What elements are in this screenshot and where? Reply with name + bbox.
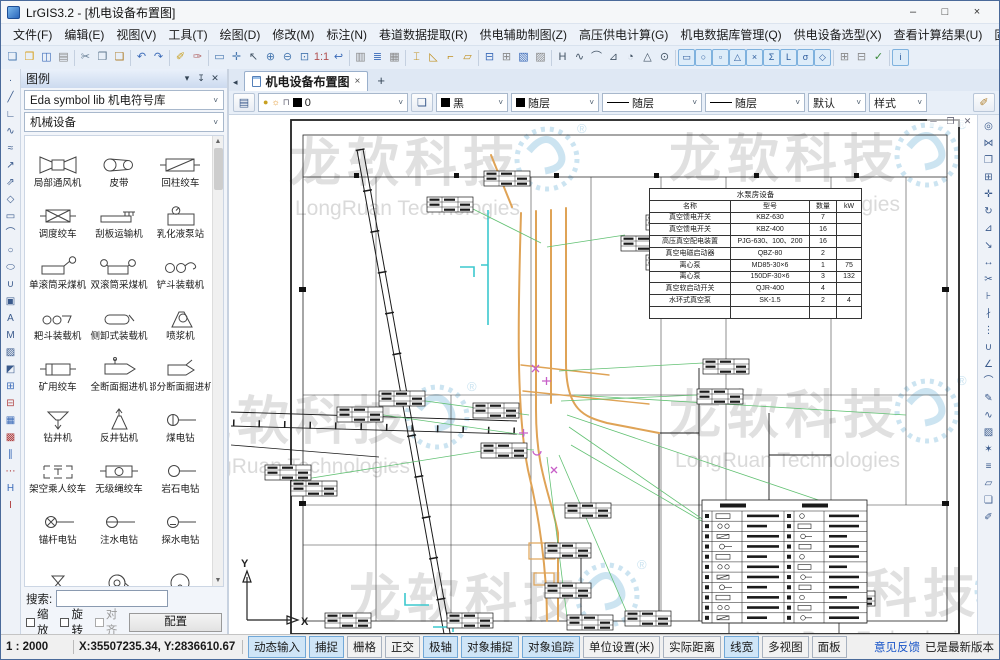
legend-symbol-18[interactable]: 架空乘人绞车	[27, 444, 88, 495]
toolbar-belt-layout-icon[interactable]: ⌶	[408, 49, 425, 66]
draw-align-icon[interactable]: ∥	[3, 446, 19, 463]
legend-symbol-label: 反井钻机	[100, 434, 138, 444]
tab-drawing[interactable]: 机电设备布置图 ×	[244, 71, 369, 91]
modify-fillet-icon[interactable]: ⌒	[981, 373, 997, 390]
layer-manager-icon[interactable]: ▤	[233, 93, 255, 112]
legend-symbol-9[interactable]: 耙斗装载机	[27, 291, 88, 342]
modify-join-icon[interactable]: ∪	[981, 339, 997, 356]
modify-edit-hatch-icon[interactable]: ▨	[981, 424, 997, 441]
legend-symbol-label: 铲斗装载机	[157, 281, 205, 291]
modify-array-icon[interactable]: ⊞	[981, 169, 997, 186]
toolbar-multi-view-2-icon[interactable]: ⊟	[853, 49, 870, 66]
table-row: 高压真空配电装置PJG-630、100、20016	[650, 236, 862, 248]
legend-symbol-label: 刮板运输机	[95, 230, 143, 240]
toolbar-fixed-equip-2-icon[interactable]: ∿	[571, 49, 588, 66]
toolbar-power-draft-1-icon[interactable]: ⊟	[481, 49, 498, 66]
toolbar-info-icon[interactable]: i	[892, 49, 909, 66]
panel-close-icon[interactable]: ✕	[208, 73, 222, 84]
pump-table-title: 水泵房设备	[650, 189, 862, 201]
version-status: 已是最新版本	[925, 639, 994, 655]
table-row	[650, 306, 862, 318]
menu-power-draft[interactable]: 供电辅助制图(Z)	[474, 24, 573, 45]
mdi-close-icon[interactable]: ✕	[961, 116, 974, 127]
legend-symbol-5[interactable]: 乳化液泵站	[150, 189, 211, 240]
legend-symbol-2[interactable]: 回柱绞车	[150, 138, 211, 189]
checkbox-rotate-box[interactable]	[60, 618, 69, 627]
toolbar-open-icon[interactable]: ❒	[21, 49, 38, 66]
status-toggles: 动态输入捕捉栅格正交极轴对象捕捉对象追踪单位设置(米)实际距离线宽多视图面板	[248, 636, 847, 658]
modify-lengthen-icon[interactable]: ↔	[981, 254, 997, 271]
modify-select-similar-icon[interactable]: ◎	[981, 118, 997, 135]
modify-edit-spline-icon[interactable]: ∿	[981, 407, 997, 424]
legend-symbol-25[interactable]	[88, 546, 149, 587]
toolbar-fixed-equip-7-icon[interactable]: ⊙	[656, 49, 673, 66]
mdi-restore-icon[interactable]: ❐	[944, 116, 957, 127]
legend-symbol-3[interactable]: 调度绞车	[27, 189, 88, 240]
layer-color-swatch	[293, 98, 302, 107]
draw-point-icon[interactable]: ·	[3, 72, 19, 89]
toolbar-lifting-layout-icon[interactable]: ⌐	[442, 49, 459, 66]
plot-style-select[interactable]: 默认˅	[808, 93, 866, 112]
toolbar-result-diamond-icon[interactable]: ◇	[814, 49, 831, 66]
table-row: 真空软启动开关QJR-4004	[650, 283, 862, 295]
legend-symbol-19[interactable]: 无级绳绞车	[88, 444, 149, 495]
legend-symbol-17[interactable]: 煤电钻	[150, 393, 211, 444]
draw-block-edit-icon[interactable]: ▩	[3, 429, 19, 446]
legend-symbol-label: 岩石电钻	[161, 485, 199, 495]
draw-block-attribute-icon[interactable]: ▦	[3, 412, 19, 429]
toolbar-result-rect-icon[interactable]: ▭	[678, 49, 695, 66]
linetype-select[interactable]: 随层˅	[602, 93, 702, 112]
legend-symbol-8[interactable]: 铲斗装载机	[150, 240, 211, 291]
table-row: 真空电磁启动器QBZ-802	[650, 247, 862, 259]
menu-tools[interactable]: 工具(T)	[162, 24, 213, 45]
toolbar-undo-icon[interactable]: ↶	[133, 49, 150, 66]
draw-mtext-icon[interactable]: M	[3, 327, 19, 344]
menu-modify[interactable]: 修改(M)	[266, 24, 320, 45]
legend-symbol-label: 矿用绞车	[39, 383, 77, 393]
toggle-lineweight[interactable]: 线宽	[724, 636, 759, 658]
toggle-grid[interactable]: 栅格	[347, 636, 382, 658]
chevron-down-icon: ˅	[213, 96, 218, 105]
legend-symbol-label: 单滚筒采煤机	[29, 281, 86, 291]
toolbar-save-icon[interactable]: ◫	[38, 49, 55, 66]
legend-symbol-24[interactable]	[27, 546, 88, 587]
drawing-canvas[interactable]: 龙软科技LongRuan Technologies®龙软科技LongRuan T…	[229, 115, 977, 634]
legend-symbol-16[interactable]: 反井钻机	[88, 393, 149, 444]
svg-text:X: X	[301, 616, 309, 628]
toggle-ortho[interactable]: 正交	[385, 636, 420, 658]
toolbar-result-square-icon[interactable]: ▫	[712, 49, 729, 66]
toolbar-copy-icon[interactable]: ❐	[94, 49, 111, 66]
toggle-panel[interactable]: 面板	[812, 636, 847, 658]
table-row: 真空馈电开关KBZ-40016	[650, 224, 862, 236]
legend-symbol-23[interactable]: 探水电钻	[150, 495, 211, 546]
toggle-units-meter[interactable]: 单位设置(米)	[583, 636, 660, 658]
modify-move-icon[interactable]: ✛	[981, 186, 997, 203]
sun-icon[interactable]: ☼	[271, 98, 279, 107]
draw-ray-icon[interactable]: ↗	[3, 157, 19, 174]
minimize-button[interactable]: –	[897, 2, 929, 22]
modify-break-icon[interactable]: ∤	[981, 305, 997, 322]
legend-symbol-21[interactable]: 锚杆电钻	[27, 495, 88, 546]
table-row: 水环式真空泵SK-1.524	[650, 295, 862, 307]
legend-symbol-0[interactable]: 局部通风机	[27, 138, 88, 189]
legend-panel: 图例 ▾ ↧ ✕ Eda symbol lib 机电符号库 ˅ 机械设备 ˅ 局…	[21, 69, 229, 634]
legend-symbol-label: 调度绞车	[39, 230, 77, 240]
toolbar-apply-check-icon[interactable]: ✓	[870, 49, 887, 66]
toolbar-select-icon[interactable]: ↖	[245, 49, 262, 66]
table-row: 离心泵150DF-30×63132	[650, 271, 862, 283]
toolbar-print-preview-icon[interactable]: ▤	[55, 49, 72, 66]
modify-scale-icon[interactable]: ⊿	[981, 220, 997, 237]
menu-fixed-equip[interactable]: 固定及运输设备选型(Y)	[988, 24, 999, 45]
app-window: LrGIS3.2 - [机电设备布置图] – □ × 文件(F)编辑(E)视图(…	[0, 0, 1000, 660]
draw-line-icon[interactable]: ╱	[3, 89, 19, 106]
modify-break-at-point-icon[interactable]: ⋮	[981, 322, 997, 339]
legend-options: 缩放旋转对齐配置	[21, 610, 227, 634]
toolbar-roadway-extract-2-icon[interactable]: ≣	[369, 49, 386, 66]
draw-image-icon[interactable]: ▣	[3, 293, 19, 310]
toggle-snap[interactable]: 捕捉	[309, 636, 344, 658]
pump-room-table: 水泵房设备名称型号数量kW真空馈电开关KBZ-6307真空馈电开关KBZ-400…	[649, 188, 862, 319]
menu-annotate[interactable]: 标注(N)	[320, 24, 373, 45]
scroll-down-icon[interactable]: ▼	[213, 575, 223, 586]
toolbar-result-circle-icon[interactable]: ○	[695, 49, 712, 66]
toggle-real-distance[interactable]: 实际距离	[663, 636, 721, 658]
legend-symbol-label: 喷浆机	[166, 332, 195, 342]
draw-text-icon[interactable]: A	[3, 310, 19, 327]
draw-circle-icon[interactable]: ○	[3, 242, 19, 259]
menubar: 文件(F)编辑(E)视图(V)工具(T)绘图(D)修改(M)标注(N)巷道数据提…	[1, 23, 999, 45]
draw-gradient-hatch-icon[interactable]: ◩	[3, 361, 19, 378]
toggle-dynamic-input[interactable]: 动态输入	[248, 636, 306, 658]
legend-scrollbar[interactable]: ▲ ▼	[212, 136, 223, 586]
menu-hv-calc[interactable]: 高压供电计算(G)	[573, 24, 674, 45]
modify-chamfer-icon[interactable]: ∠	[981, 356, 997, 373]
pump-table-header: 型号	[731, 200, 810, 212]
draw-h-beam-icon[interactable]: H	[3, 480, 19, 497]
lineweight-select[interactable]: 随层˅	[705, 93, 805, 112]
toggle-polar[interactable]: 极轴	[423, 636, 458, 658]
titlebar: LrGIS3.2 - [机电设备布置图] – □ ×	[1, 1, 999, 23]
draw-hatch-icon[interactable]: ▨	[3, 344, 19, 361]
config-button[interactable]: 配置	[129, 613, 222, 632]
draw-insert-block-icon[interactable]: ⊞	[3, 378, 19, 395]
legend-symbol-label: 探水电钻	[161, 536, 199, 546]
new-tab-button[interactable]: +	[371, 73, 391, 91]
draw-spline-icon[interactable]: ∿	[3, 123, 19, 140]
toggle-object-snap[interactable]: 对象捕捉	[461, 636, 519, 658]
draw-arc-icon[interactable]: ⌒	[3, 225, 19, 242]
draw-create-block-icon[interactable]: ⊟	[3, 395, 19, 412]
scale-indicator: 1 : 2000	[6, 641, 68, 653]
modify-copy-object-icon[interactable]: ❐	[981, 152, 997, 169]
table-row: 真空馈电开关KBZ-6307	[650, 212, 862, 224]
toolbar-result-sigma-icon[interactable]: Σ	[763, 49, 780, 66]
text-style-select[interactable]: 样式˅	[869, 93, 927, 112]
legend-symbol-label: 回柱绞车	[161, 179, 199, 189]
draw-construction-line-icon[interactable]: ⇗	[3, 174, 19, 191]
svg-text:Y: Y	[241, 558, 249, 570]
toolbar-previous-view-icon[interactable]: ↩	[330, 49, 347, 66]
draw-polygon-icon[interactable]: ◇	[3, 191, 19, 208]
menu-power-equip[interactable]: 供电设备选型(X)	[788, 24, 888, 45]
close-button[interactable]: ×	[961, 2, 993, 22]
modify-trim-icon[interactable]: ✂	[981, 271, 997, 288]
legend-symbol-label: 全断面掘进机	[90, 383, 147, 393]
toolbar-roadway-extract-3-icon[interactable]: ▦	[386, 49, 403, 66]
draw-polyline-icon[interactable]: ∟	[3, 106, 19, 123]
legend-symbol-label: 锚杆电钻	[39, 536, 77, 546]
legend-symbol-10[interactable]: 侧卸式装载机	[88, 291, 149, 342]
toolbar-multi-view-1-icon[interactable]: ⊞	[836, 49, 853, 66]
color-bylayer-select[interactable]: 随层˅	[511, 93, 599, 112]
scrollbar-thumb[interactable]	[214, 148, 223, 190]
modify-wipeout-icon[interactable]: ▱	[981, 475, 997, 492]
draw-sketch-icon[interactable]: ≈	[3, 140, 19, 157]
search-input[interactable]	[56, 590, 168, 607]
panel-dropdown-icon[interactable]: ▾	[180, 73, 194, 84]
legend-symbol-label: 部分断面掘进机	[150, 383, 211, 393]
draw-toolbar: ·╱∟∿≈↗⇗◇▭⌒○⬭∪▣AM▨◩⊞⊟▦▩∥⋯HI	[1, 69, 21, 634]
modify-draworder-icon[interactable]: ❏	[981, 492, 997, 509]
legend-symbol-label: 煤电钻	[166, 434, 195, 444]
toolbar-slope-layout-icon[interactable]: ◺	[425, 49, 442, 66]
menu-view-results[interactable]: 查看计算结果(U)	[888, 24, 989, 45]
modify-rotate-icon[interactable]: ↻	[981, 203, 997, 220]
symbol-list: 局部通风机皮带回柱绞车调度绞车刮板运输机乳化液泵站单滚筒采煤机双滚筒采煤机铲斗装…	[24, 135, 224, 587]
pump-table-header: 数量	[810, 200, 837, 212]
toolbar-fixed-equip-4-icon[interactable]: ⊿	[605, 49, 622, 66]
toolbar-fixed-equip-3-icon[interactable]: ⌒	[588, 49, 605, 66]
toolbar-result-sigma2-icon[interactable]: σ	[797, 49, 814, 66]
legend-symbol-14[interactable]: 部分断面掘进机	[150, 342, 211, 393]
toolbar-zoom-in-icon[interactable]: ⊕	[262, 49, 279, 66]
legend-symbol-4[interactable]: 刮板运输机	[88, 189, 149, 240]
chevron-down-icon: ˅	[213, 118, 218, 127]
toolbar-result-triangle-icon[interactable]: △	[729, 49, 746, 66]
legend-symbol-26[interactable]	[150, 546, 211, 587]
lock-icon[interactable]: ⊓	[283, 98, 290, 107]
legend-symbol-label: 局部通风机	[34, 179, 82, 189]
legend-symbol-7[interactable]: 双滚筒采煤机	[88, 240, 149, 291]
properties-toolbar: ▤ ● ☼ ⊓ 0 ˅ ❑ 黑˅ 随层˅ 随层˅	[229, 91, 999, 115]
legend-symbol-13[interactable]: 全断面掘进机	[88, 342, 149, 393]
color-select[interactable]: 黑˅	[436, 93, 508, 112]
legend-symbol-label: 乳化液泵站	[157, 230, 205, 240]
checkbox-scale-box[interactable]	[26, 618, 35, 627]
tabbar: ◂ 机电设备布置图 × +	[229, 69, 999, 91]
bulb-icon[interactable]: ●	[263, 98, 268, 107]
pump-table-header: 名称	[650, 200, 731, 212]
modify-explode-icon[interactable]: ✶	[981, 441, 997, 458]
toolbar-zoom-1-1-icon[interactable]: 1:1	[313, 49, 330, 66]
toolbar-fixed-equip-1-icon[interactable]: H	[554, 49, 571, 66]
legend-symbol-label: 侧卸式装载机	[90, 332, 147, 342]
toolbar-clean-brush-icon[interactable]: ✑	[189, 49, 206, 66]
mdi-minimize-icon[interactable]: ─	[927, 116, 940, 127]
legend-symbol-label: 架空乘人绞车	[29, 485, 86, 495]
menu-view[interactable]: 视图(V)	[110, 24, 162, 45]
toolbar-result-x-icon[interactable]: ×	[746, 49, 763, 66]
toolbar-fixed-equip-5-icon[interactable]: ◔	[622, 49, 639, 66]
main-toolbar: ❏❒◫▤✂❐❑↶↷✐✑▭✛↖⊕⊖⊡1:1↩▥≣▦⌶◺⌐▱⊟⊞▧▨H∿⌒⊿◔△⊙▭…	[1, 45, 999, 69]
toolbar-cut-icon[interactable]: ✂	[77, 49, 94, 66]
toolbar-zoom-out-icon[interactable]: ⊖	[279, 49, 296, 66]
toolbar-power-draft-4-icon[interactable]: ▨	[532, 49, 549, 66]
toolbar-roadway-extract-1-icon[interactable]: ▥	[352, 49, 369, 66]
toggle-object-track[interactable]: 对象追踪	[522, 636, 580, 658]
menu-roadway-data[interactable]: 巷道数据提取(R)	[373, 24, 474, 45]
modify-toolbar: ◎⋈❐⊞✛↻⊿↘↔✂⊦∤⋮∪∠⌒✎∿▨✶≡▱❏✐	[977, 115, 999, 634]
toolbar-result-corner-icon[interactable]: L	[780, 49, 797, 66]
modify-mirror-icon[interactable]: ⋈	[981, 135, 997, 152]
modify-stretch-icon[interactable]: ↘	[981, 237, 997, 254]
legend-symbol-label: 钻井机	[43, 434, 72, 444]
legend-symbol-12[interactable]: 矿用绞车	[27, 342, 88, 393]
menu-edit[interactable]: 编辑(E)	[58, 24, 110, 45]
brush-icon[interactable]: ✐	[973, 93, 995, 112]
tab-label: 机电设备布置图	[266, 73, 350, 90]
toolbar-power-draft-2-icon[interactable]: ⊞	[498, 49, 515, 66]
toolbar-new-icon[interactable]: ❏	[4, 49, 21, 66]
symbol-library-select[interactable]: Eda symbol lib 机电符号库 ˅	[24, 90, 224, 110]
table-row: 离心泵MD85-30×6175	[650, 259, 862, 271]
maximize-button[interactable]: □	[929, 2, 961, 22]
scroll-up-icon[interactable]: ▲	[213, 136, 223, 147]
checkbox-align-box[interactable]	[95, 618, 104, 627]
draw-i-beam-icon[interactable]: I	[3, 497, 19, 514]
feedback-link[interactable]: 意见反馈	[874, 639, 920, 655]
legend-symbol-label: 皮带	[109, 179, 128, 189]
coordinates-display: X:35507235.34, Y:2836610.67	[79, 641, 237, 653]
draw-path-array-icon[interactable]: ⋯	[3, 463, 19, 480]
tab-close-icon[interactable]: ×	[355, 76, 361, 87]
toggle-multi-view[interactable]: 多视图	[762, 636, 809, 658]
window-title: LrGIS3.2 - [机电设备布置图]	[26, 4, 175, 21]
toolbar-fixed-equip-6-icon[interactable]: △	[639, 49, 656, 66]
toolbar-redo-icon[interactable]: ↷	[150, 49, 167, 66]
search-label: 搜索:	[26, 591, 52, 607]
modify-edit-polyline-icon[interactable]: ✎	[981, 390, 997, 407]
document-icon	[252, 76, 261, 87]
menu-file[interactable]: 文件(F)	[7, 24, 58, 45]
legend-symbol-20[interactable]: 岩石电钻	[150, 444, 211, 495]
draw-revision-cloud-icon[interactable]: ∪	[3, 276, 19, 293]
legend-title: 图例	[26, 70, 50, 87]
toolbar-zoom-window-icon[interactable]: ▭	[211, 49, 228, 66]
legend-symbol-15[interactable]: 钻井机	[27, 393, 88, 444]
legend-symbol-11[interactable]: 喷浆机	[150, 291, 211, 342]
legend-symbol-22[interactable]: 注水电钻	[88, 495, 149, 546]
legend-symbol-6[interactable]: 单滚筒采煤机	[27, 240, 88, 291]
menu-draw[interactable]: 绘图(D)	[214, 24, 267, 45]
legend-symbol-label: 双滚筒采煤机	[90, 281, 147, 291]
legend-symbol-1[interactable]: 皮带	[88, 138, 149, 189]
toolbar-zoom-extents-icon[interactable]: ⊡	[296, 49, 313, 66]
layer-select[interactable]: ● ☼ ⊓ 0 ˅	[258, 93, 408, 112]
draw-rectangle-icon[interactable]: ▭	[3, 208, 19, 225]
pump-table-header: kW	[837, 200, 862, 212]
legend-symbol-label: 耙斗装载机	[34, 332, 82, 342]
toolbar-paste-icon[interactable]: ❑	[111, 49, 128, 66]
menu-mech-db[interactable]: 机电数据库管理(Q)	[674, 24, 787, 45]
toolbar-pan-icon[interactable]: ✛	[228, 49, 245, 66]
symbol-grid: 局部通风机皮带回柱绞车调度绞车刮板运输机乳化液泵站单滚筒采煤机双滚筒采煤机铲斗装…	[25, 136, 223, 587]
modify-style-brush-icon[interactable]: ✐	[981, 509, 997, 526]
toolbar-power-draft-3-icon[interactable]: ▧	[515, 49, 532, 66]
mdi-controls: ─ ❐ ✕	[927, 116, 974, 127]
legend-symbol-label: 注水电钻	[100, 536, 138, 546]
toolbar-format-brush-icon[interactable]: ✐	[172, 49, 189, 66]
symbol-category-select[interactable]: 机械设备 ˅	[24, 112, 224, 132]
toolbar-tank-layout-icon[interactable]: ▱	[459, 49, 476, 66]
draw-ellipse-icon[interactable]: ⬭	[3, 259, 19, 276]
tab-scroll-left-icon[interactable]: ◂	[232, 77, 241, 91]
modify-extend-icon[interactable]: ⊦	[981, 288, 997, 305]
layer-previous-icon[interactable]: ❑	[411, 93, 433, 112]
app-icon	[7, 6, 20, 19]
modify-offset-icon[interactable]: ≡	[981, 458, 997, 475]
pin-icon[interactable]: ↧	[194, 73, 208, 84]
statusbar: 1 : 2000 X:35507235.34, Y:2836610.67 动态输…	[1, 634, 999, 659]
legend-table	[702, 500, 867, 623]
legend-symbol-label: 无级绳绞车	[95, 485, 143, 495]
